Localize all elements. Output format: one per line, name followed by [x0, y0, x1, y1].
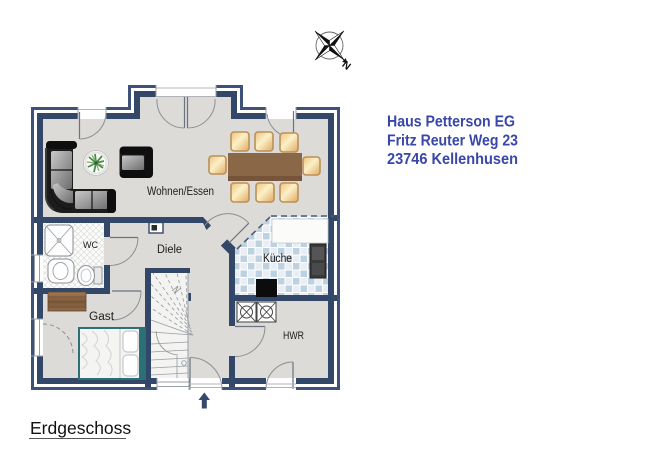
svg-text:Gast: Gast	[89, 311, 115, 323]
svg-text:Fritz Reuter Weg 23: Fritz Reuter Weg 23	[387, 132, 518, 149]
svg-text:WC: WC	[83, 240, 98, 251]
svg-text:N: N	[339, 59, 352, 73]
svg-text:Haus Petterson EG: Haus Petterson EG	[387, 114, 515, 131]
svg-text:Erdgeschoss: Erdgeschoss	[30, 418, 131, 438]
svg-text:Küche: Küche	[263, 253, 292, 265]
svg-text:HWR: HWR	[283, 330, 304, 342]
svg-text:23746 Kellenhusen: 23746 Kellenhusen	[387, 151, 518, 168]
svg-text:Wohnen/Essen: Wohnen/Essen	[147, 186, 214, 198]
svg-text:Diele: Diele	[157, 244, 182, 256]
